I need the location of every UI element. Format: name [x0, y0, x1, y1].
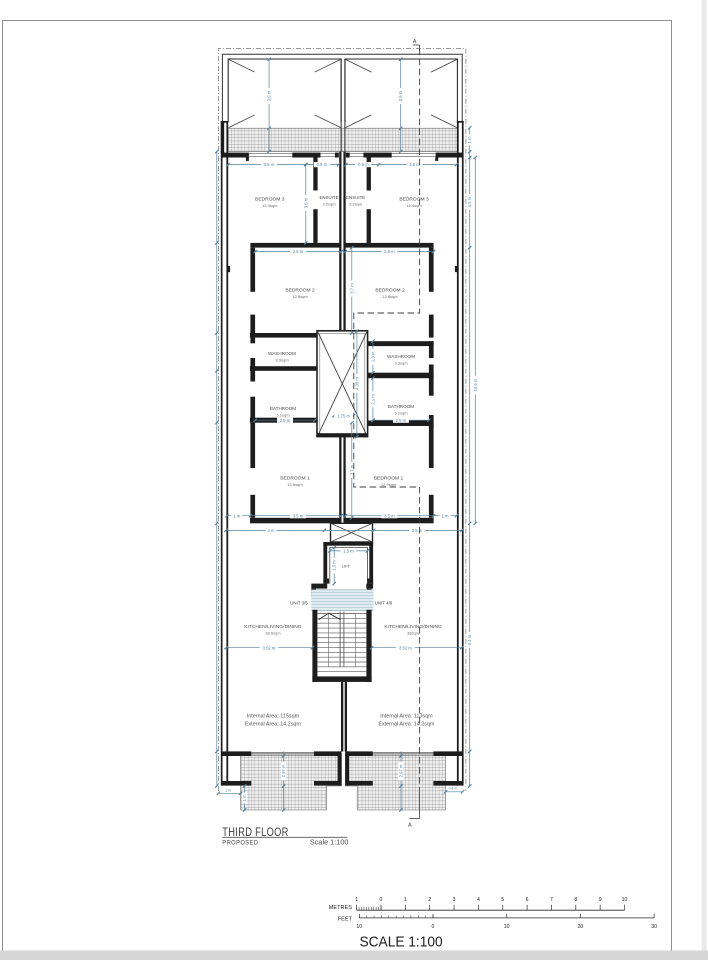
svg-text:38sqm: 38sqm [407, 630, 420, 635]
svg-text:1.3 m: 1.3 m [370, 351, 375, 362]
svg-text:LIFT: LIFT [342, 564, 351, 569]
svg-text:2.5 m: 2.5 m [280, 418, 291, 423]
svg-text:9: 9 [599, 897, 602, 903]
svg-text:Internal Area: 115sqm: Internal Area: 115sqm [247, 713, 300, 719]
svg-text:10: 10 [622, 897, 628, 903]
svg-text:3: 3 [453, 897, 456, 903]
svg-text:A: A [413, 39, 417, 45]
svg-text:3.6 m: 3.6 m [409, 162, 420, 167]
svg-text:External Area: 14.2sqm: External Area: 14.2sqm [245, 721, 302, 727]
svg-text:4.5 m: 4.5 m [467, 196, 472, 207]
svg-text:BATHROOM: BATHROOM [388, 404, 414, 409]
svg-text:7: 7 [550, 897, 553, 903]
svg-text:38.9sqm: 38.9sqm [265, 630, 281, 635]
svg-text:9.4 m: 9.4 m [467, 634, 472, 645]
svg-text:1 m: 1 m [442, 513, 449, 518]
svg-text:BEDROOM 1: BEDROOM 1 [280, 476, 310, 482]
svg-text:2.97 m: 2.97 m [281, 764, 286, 777]
svg-text:BEDROOM 2: BEDROOM 2 [375, 288, 405, 294]
svg-text:BEDROOM 3: BEDROOM 3 [255, 197, 285, 203]
svg-text:1: 1 [404, 897, 407, 903]
svg-text:3.5 m: 3.5 m [293, 249, 304, 254]
svg-text:3.9 m: 3.9 m [398, 90, 403, 101]
svg-text:12.9sqm: 12.9sqm [381, 482, 397, 487]
svg-text:0.9 m: 0.9 m [358, 162, 369, 167]
svg-text:4 m: 4 m [268, 528, 275, 533]
svg-text:0: 0 [432, 924, 435, 930]
svg-text:METRES: METRES [329, 905, 353, 911]
svg-text:2.5 m: 2.5 m [396, 418, 407, 423]
svg-text:3.3sqm: 3.3sqm [394, 361, 408, 366]
svg-text:FEET: FEET [338, 917, 353, 923]
svg-text:1.75 m: 1.75 m [337, 413, 350, 418]
svg-text:BEDROOM 2: BEDROOM 2 [285, 288, 315, 294]
svg-text:15.4sqm: 15.4sqm [262, 203, 278, 208]
svg-text:13.8sqm: 13.8sqm [287, 482, 303, 487]
svg-text:3.52 m: 3.52 m [263, 645, 276, 650]
svg-text:PROPOSED: PROPOSED [222, 839, 258, 847]
svg-text:3.7 m: 3.7 m [349, 283, 354, 294]
svg-text:ENSUITE: ENSUITE [319, 195, 338, 200]
svg-text:12.8sqm: 12.8sqm [292, 294, 308, 299]
svg-text:3.52 m: 3.52 m [399, 645, 412, 650]
svg-text:Internal Area: 113sqm: Internal Area: 113sqm [380, 713, 433, 719]
svg-text:3.2sqm: 3.2sqm [349, 202, 363, 207]
svg-text:KITCHEN/LIVING/DINING: KITCHEN/LIVING/DINING [244, 624, 302, 630]
svg-text:1.5 m: 1.5 m [343, 549, 354, 554]
svg-text:External Area: 14.2sqm: External Area: 14.2sqm [378, 721, 435, 727]
svg-text:12.8sqm: 12.8sqm [382, 294, 398, 299]
svg-text:UNIT 4/6: UNIT 4/6 [375, 601, 393, 606]
svg-text:3.5 m: 3.5 m [303, 197, 308, 208]
svg-text:BEDROOM 3: BEDROOM 3 [399, 197, 429, 203]
svg-text:5: 5 [501, 897, 504, 903]
svg-text:3.6 m: 3.6 m [264, 162, 275, 167]
svg-text:3.3sqm: 3.3sqm [275, 358, 289, 363]
svg-text:10: 10 [504, 924, 510, 930]
svg-text:BATHROOM: BATHROOM [270, 406, 296, 411]
svg-text:3.5 m: 3.5 m [384, 249, 395, 254]
svg-text:3.5 m: 3.5 m [293, 513, 304, 518]
svg-text:A: A [408, 823, 412, 829]
svg-text:WASHROOM: WASHROOM [387, 354, 415, 359]
svg-text:UNIT 3/5: UNIT 3/5 [290, 601, 308, 606]
svg-text:WASHROOM: WASHROOM [268, 351, 296, 356]
svg-text:10: 10 [356, 924, 362, 930]
svg-text:SCALE 1:100: SCALE 1:100 [360, 934, 443, 950]
svg-text:BEDROOM 1: BEDROOM 1 [374, 476, 404, 482]
svg-text:20: 20 [578, 924, 584, 930]
svg-text:2.97 m: 2.97 m [399, 764, 404, 777]
svg-text:2.1 m: 2.1 m [370, 394, 375, 405]
svg-text:1 m: 1 m [242, 794, 247, 801]
svg-text:3.2sqm: 3.2sqm [322, 202, 336, 207]
svg-text:2: 2 [428, 897, 431, 903]
svg-text:30: 30 [651, 924, 657, 930]
svg-text:4.35 m: 4.35 m [354, 376, 359, 389]
svg-text:4: 4 [477, 897, 480, 903]
svg-text:8: 8 [574, 897, 577, 903]
svg-text:0.8 m: 0.8 m [449, 786, 458, 790]
svg-text:6: 6 [526, 897, 529, 903]
svg-text:0: 0 [380, 897, 383, 903]
svg-text:1: 1 [355, 897, 358, 903]
svg-text:KITCHEN/LIVING/DINING: KITCHEN/LIVING/DINING [384, 624, 442, 630]
svg-text:Scale 1:100: Scale 1:100 [310, 837, 349, 846]
svg-text:3.5 m: 3.5 m [412, 528, 423, 533]
svg-text:10.6 m: 10.6 m [473, 378, 478, 391]
svg-text:1 m: 1 m [225, 788, 231, 792]
svg-text:3.9 m: 3.9 m [267, 90, 272, 101]
svg-text:ENSUITE: ENSUITE [346, 195, 365, 200]
svg-text:1 m: 1 m [467, 136, 472, 143]
svg-text:1.5 m: 1.5 m [332, 560, 337, 571]
svg-text:1 m: 1 m [233, 513, 240, 518]
svg-text:5.1sqm: 5.1sqm [394, 411, 408, 416]
svg-text:0.9 m: 0.9 m [317, 162, 328, 167]
svg-text:3.5 m: 3.5 m [384, 513, 395, 518]
